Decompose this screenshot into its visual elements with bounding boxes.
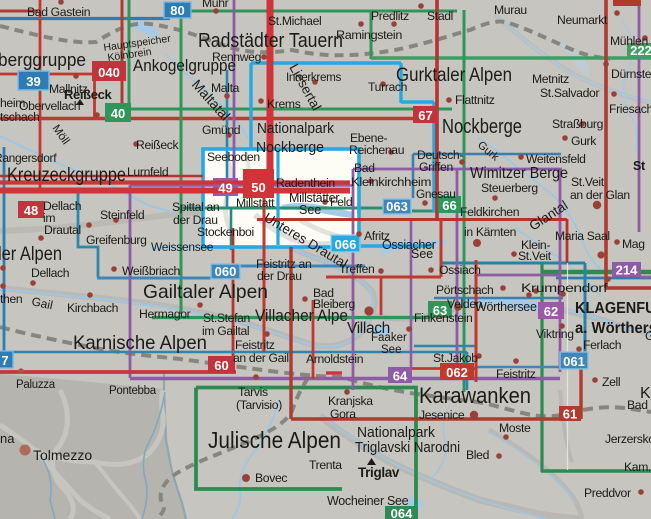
svg-text:48: 48: [24, 203, 38, 218]
svg-text:St.Stefan: St.Stefan: [203, 311, 250, 325]
svg-text:Gurk: Gurk: [571, 134, 597, 148]
svg-text:Spittal an: Spittal an: [172, 200, 219, 214]
svg-text:(Tarvisio): (Tarvisio): [236, 398, 282, 412]
svg-text:Faaker: Faaker: [371, 332, 407, 344]
svg-text:Kreuzeckgruppe: Kreuzeckgruppe: [7, 165, 126, 186]
svg-text:Friesach: Friesach: [609, 102, 651, 116]
svg-text:St.Jakob: St.Jakob: [433, 351, 478, 365]
svg-text:berggruppe: berggruppe: [0, 49, 86, 70]
svg-text:Nationalpark: Nationalpark: [357, 425, 436, 441]
svg-text:Bad Gastein: Bad Gastein: [27, 5, 90, 19]
svg-text:Neumarkt: Neumarkt: [557, 13, 608, 27]
svg-text:Karnische Alpen: Karnische Alpen: [73, 332, 207, 354]
svg-text:Millstatt: Millstatt: [236, 196, 275, 210]
svg-text:Zell: Zell: [602, 375, 620, 389]
svg-text:Greifenburg: Greifenburg: [86, 233, 147, 247]
svg-text:St.Salvador: St.Salvador: [540, 86, 599, 100]
svg-text:Feistritz: Feistritz: [235, 338, 275, 352]
svg-text:Bleiberg: Bleiberg: [313, 297, 355, 311]
svg-text:50: 50: [251, 180, 265, 195]
svg-text:a. Wörthers.: a. Wörthers.: [575, 320, 651, 337]
svg-text:Reichenau: Reichenau: [349, 143, 404, 157]
svg-text:Dellach: Dellach: [31, 266, 69, 280]
svg-text:Moste: Moste: [499, 421, 531, 435]
svg-text:Reißeck: Reißeck: [136, 138, 180, 152]
svg-text:Nockberge: Nockberge: [256, 139, 324, 156]
svg-text:Reißeck: Reißeck: [64, 87, 113, 102]
svg-text:Griffen: Griffen: [419, 160, 453, 174]
svg-text:St.Michael: St.Michael: [268, 14, 321, 28]
svg-text:Weitensfeld: Weitensfeld: [526, 152, 586, 166]
svg-text:in Kärnten: in Kärnten: [464, 225, 516, 239]
svg-text:Drautal: Drautal: [44, 223, 81, 237]
svg-text:See: See: [299, 203, 321, 217]
svg-text:Gmünd: Gmünd: [202, 123, 240, 137]
svg-text:Hermagor: Hermagor: [139, 307, 191, 321]
svg-text:066: 066: [335, 237, 357, 252]
svg-text:KLAGENFURT: KLAGENFURT: [575, 300, 651, 317]
svg-text:Tarvis: Tarvis: [238, 385, 268, 399]
svg-text:ler Alpen: ler Alpen: [0, 244, 62, 265]
svg-text:Bad: Bad: [354, 161, 375, 175]
svg-text:40: 40: [111, 106, 125, 121]
svg-text:Weissensee: Weissensee: [151, 240, 214, 254]
svg-text:Tolmezzo: Tolmezzo: [33, 447, 92, 463]
svg-text:Bled: Bled: [466, 448, 489, 462]
svg-text:Steuerberg: Steuerberg: [481, 181, 538, 195]
svg-text:an der Gail: an der Gail: [233, 351, 289, 365]
svg-text:Wocheiner See: Wocheiner See: [327, 494, 409, 508]
svg-text:Paluzza: Paluzza: [16, 379, 56, 391]
svg-text:Kam.: Kam.: [624, 460, 651, 474]
svg-text:See: See: [381, 344, 401, 356]
svg-text:Wörthersee: Wörthersee: [475, 300, 537, 314]
svg-text:67: 67: [418, 108, 432, 123]
svg-text:Radstädter Tauern: Radstädter Tauern: [198, 30, 343, 52]
svg-text:Steinfeld: Steinfeld: [100, 208, 144, 222]
svg-text:Ossiach: Ossiach: [439, 263, 481, 277]
svg-text:Triglav: Triglav: [358, 465, 400, 480]
svg-text:then: then: [0, 292, 22, 306]
svg-text:Kirchbach: Kirchbach: [67, 301, 118, 315]
svg-text:Treffen: Treffen: [339, 262, 375, 276]
svg-text:St: St: [633, 159, 646, 173]
svg-text:Julische Alpen: Julische Alpen: [208, 427, 341, 453]
svg-text:Predlitz: Predlitz: [371, 9, 409, 23]
svg-text:Ramingstein: Ramingstein: [336, 28, 402, 42]
svg-text:Preddvor: Preddvor: [584, 486, 631, 500]
svg-text:Malta: Malta: [211, 81, 240, 95]
svg-text:Gnesau: Gnesau: [416, 187, 456, 201]
svg-text:7: 7: [1, 353, 8, 368]
svg-text:Metnitz: Metnitz: [532, 72, 569, 86]
svg-text:Nationalpark: Nationalpark: [257, 120, 334, 137]
svg-text:60: 60: [214, 358, 228, 373]
svg-text:49: 49: [218, 181, 232, 196]
svg-text:Radenthein: Radenthein: [276, 176, 335, 190]
svg-text:Viktring: Viktring: [536, 327, 574, 341]
svg-text:Pörtschach: Pörtschach: [436, 283, 493, 297]
svg-text:Gailtaler Alpen: Gailtaler Alpen: [143, 281, 268, 303]
svg-text:Innerkrems: Innerkrems: [286, 70, 341, 84]
svg-text:62: 62: [544, 304, 558, 319]
svg-text:Bad: Bad: [627, 398, 648, 412]
svg-text:Stockenboi: Stockenboi: [197, 225, 254, 239]
svg-text:na: na: [0, 431, 15, 446]
svg-text:Murau: Murau: [494, 3, 527, 17]
svg-text:Seeboden: Seeboden: [207, 150, 260, 164]
svg-text:Bovec: Bovec: [255, 471, 287, 485]
svg-text:St.Veit: St.Veit: [571, 175, 605, 189]
svg-text:im Gailtal: im Gailtal: [202, 324, 249, 338]
svg-text:062: 062: [446, 365, 468, 380]
svg-text:Turrach: Turrach: [368, 80, 407, 94]
svg-text:Mag: Mag: [622, 237, 645, 251]
svg-text:64: 64: [393, 369, 408, 384]
svg-text:Nockberge: Nockberge: [442, 116, 522, 138]
svg-text:61: 61: [563, 407, 577, 422]
svg-text:Jerzersko: Jerzersko: [605, 432, 651, 446]
svg-text:Gurktaler Alpen: Gurktaler Alpen: [396, 65, 512, 86]
svg-text:060: 060: [215, 264, 237, 279]
svg-text:Flattnitz: Flattnitz: [455, 93, 495, 107]
svg-text:Jesenice: Jesenice: [419, 408, 465, 422]
svg-text:214: 214: [616, 263, 638, 278]
svg-text:Krems: Krems: [267, 97, 301, 111]
svg-text:Rangersdorf: Rangersdorf: [0, 151, 57, 165]
svg-text:Stadl: Stadl: [427, 9, 453, 23]
svg-text:Trenta: Trenta: [309, 458, 342, 472]
svg-text:Gora: Gora: [330, 407, 356, 421]
svg-text:Rennweg: Rennweg: [212, 50, 261, 64]
svg-text:Triglavski Narodni: Triglavski Narodni: [355, 440, 460, 456]
svg-text:Straßburg: Straßburg: [552, 117, 603, 131]
svg-text:80: 80: [170, 3, 184, 18]
svg-text:39: 39: [26, 74, 40, 89]
svg-text:Weißbriach: Weißbriach: [122, 264, 180, 278]
svg-text:Feistritz: Feistritz: [496, 367, 536, 381]
svg-text:Dürnste: Dürnste: [611, 67, 651, 81]
svg-text:Ferlach: Ferlach: [583, 338, 621, 352]
svg-text:der Drau: der Drau: [257, 269, 302, 283]
svg-text:Mühlen: Mühlen: [610, 34, 648, 48]
svg-text:Lurnfeld: Lurnfeld: [127, 165, 168, 179]
svg-text:Muhr: Muhr: [202, 0, 229, 10]
svg-text:Arnoldstein: Arnoldstein: [306, 352, 363, 366]
svg-text:Finkenstein: Finkenstein: [414, 311, 472, 325]
svg-text:Maria Saal: Maria Saal: [555, 229, 610, 243]
svg-text:Pontebba: Pontebba: [109, 385, 157, 397]
svg-text:Kranjska: Kranjska: [328, 394, 373, 408]
svg-text:an der Glan: an der Glan: [570, 188, 630, 202]
svg-text:Feldkirchen: Feldkirchen: [460, 205, 519, 219]
svg-text:Wimitzer Berge: Wimitzer Berge: [470, 165, 568, 182]
svg-text:See: See: [411, 247, 433, 261]
svg-text:040: 040: [98, 65, 120, 80]
svg-text:Krumpendorf: Krumpendorf: [521, 281, 608, 295]
svg-text:G: G: [645, 329, 651, 343]
svg-text:063: 063: [386, 199, 408, 214]
svg-text:Karawanken: Karawanken: [419, 383, 531, 408]
svg-text:St.Veit: St.Veit: [518, 249, 552, 263]
svg-text:061: 061: [563, 354, 585, 369]
